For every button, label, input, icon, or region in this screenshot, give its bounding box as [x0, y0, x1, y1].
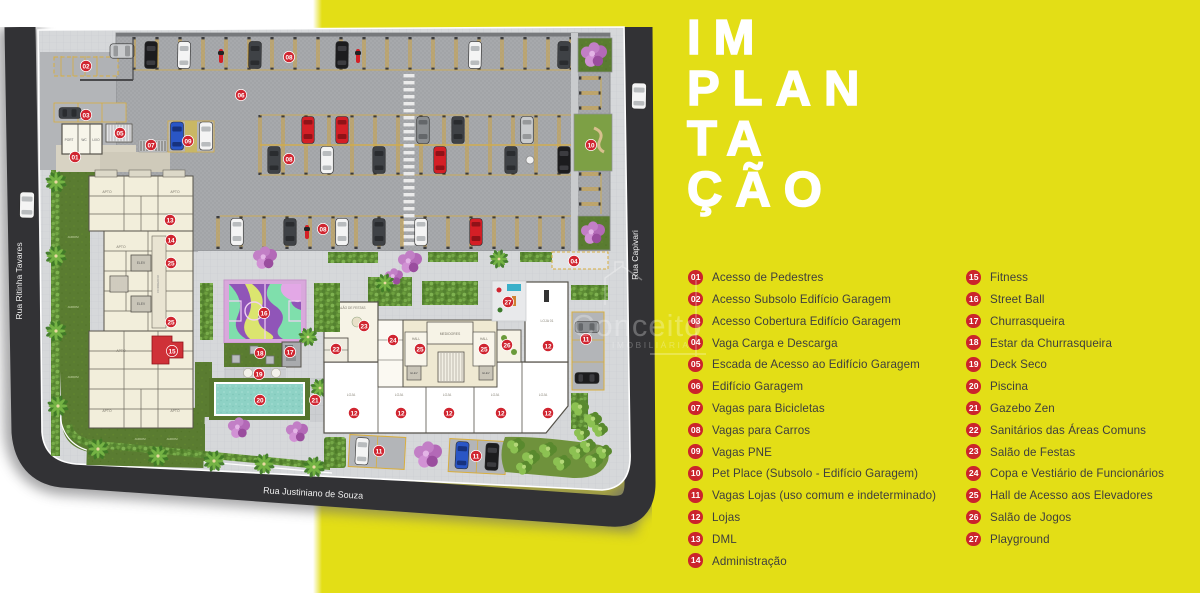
svg-text:09: 09 — [184, 138, 192, 145]
svg-text:19: 19 — [255, 371, 263, 378]
svg-text:CORREDOR: CORREDOR — [156, 274, 160, 292]
svg-text:03: 03 — [82, 112, 90, 119]
svg-text:02: 02 — [82, 63, 90, 70]
svg-text:17: 17 — [286, 349, 294, 356]
svg-text:22: 22 — [332, 346, 340, 353]
svg-text:08: 08 — [319, 226, 327, 233]
svg-text:12: 12 — [445, 410, 453, 417]
svg-text:APTO: APTO — [170, 190, 180, 194]
svg-text:25: 25 — [167, 260, 175, 267]
svg-text:ELEV: ELEV — [137, 302, 146, 306]
svg-text:23: 23 — [360, 323, 368, 330]
svg-text:LOJA: LOJA — [347, 393, 356, 397]
svg-text:07: 07 — [147, 142, 155, 149]
svg-text:JARDIM: JARDIM — [67, 235, 79, 239]
svg-text:LOJA: LOJA — [395, 393, 404, 397]
svg-text:12: 12 — [397, 410, 405, 417]
svg-text:JARDIM: JARDIM — [67, 305, 79, 309]
svg-text:24: 24 — [389, 337, 397, 344]
svg-text:JARDIM: JARDIM — [166, 437, 178, 441]
svg-text:12: 12 — [497, 410, 505, 417]
svg-text:25: 25 — [167, 319, 175, 326]
svg-text:01: 01 — [71, 154, 79, 161]
svg-text:HALL: HALL — [480, 337, 488, 341]
svg-text:HALL: HALL — [412, 337, 420, 341]
svg-text:25: 25 — [480, 346, 488, 353]
svg-text:27: 27 — [504, 299, 512, 306]
svg-text:16: 16 — [260, 310, 268, 317]
svg-text:11: 11 — [473, 453, 480, 460]
svg-text:IMOBILIÁRIA: IMOBILIÁRIA — [612, 340, 691, 350]
svg-text:APTO: APTO — [102, 409, 112, 413]
svg-text:18: 18 — [256, 350, 264, 357]
svg-text:APTO: APTO — [102, 190, 112, 194]
svg-text:JARDIM: JARDIM — [134, 437, 146, 441]
svg-text:10: 10 — [587, 142, 595, 149]
svg-text:LOJA: LOJA — [539, 393, 548, 397]
svg-text:JARDIM: JARDIM — [67, 375, 79, 379]
svg-text:MEDIDORES: MEDIDORES — [440, 332, 461, 336]
svg-text:26: 26 — [503, 342, 511, 349]
svg-text:13: 13 — [166, 217, 174, 224]
svg-text:WC: WC — [81, 138, 87, 142]
svg-text:SALÃO DE FESTAS: SALÃO DE FESTAS — [337, 305, 366, 310]
svg-text:APTO: APTO — [170, 409, 180, 413]
svg-text:11: 11 — [376, 448, 383, 455]
svg-text:25: 25 — [416, 346, 424, 353]
svg-text:APTO: APTO — [116, 349, 126, 353]
svg-text:LOJA: LOJA — [443, 393, 452, 397]
svg-text:LIXO: LIXO — [92, 138, 100, 142]
svg-text:ELEV: ELEV — [410, 371, 417, 375]
svg-text:ELEV: ELEV — [137, 261, 146, 265]
svg-text:PORT: PORT — [65, 138, 74, 142]
svg-text:05: 05 — [116, 130, 124, 137]
svg-text:08: 08 — [285, 54, 293, 61]
svg-text:APTO: APTO — [116, 245, 126, 249]
svg-text:15: 15 — [168, 348, 176, 355]
svg-text:LOJA: LOJA — [491, 393, 500, 397]
svg-text:06: 06 — [237, 92, 245, 99]
svg-text:08: 08 — [285, 156, 293, 163]
svg-text:21: 21 — [311, 397, 319, 404]
svg-text:12: 12 — [544, 410, 552, 417]
svg-text:14: 14 — [167, 237, 175, 244]
svg-text:12: 12 — [350, 410, 358, 417]
svg-text:Rua Ritinha Tavares: Rua Ritinha Tavares — [14, 242, 24, 319]
svg-text:ELEV: ELEV — [482, 371, 489, 375]
svg-text:20: 20 — [256, 397, 264, 404]
svg-text:Conceito: Conceito — [572, 308, 702, 343]
